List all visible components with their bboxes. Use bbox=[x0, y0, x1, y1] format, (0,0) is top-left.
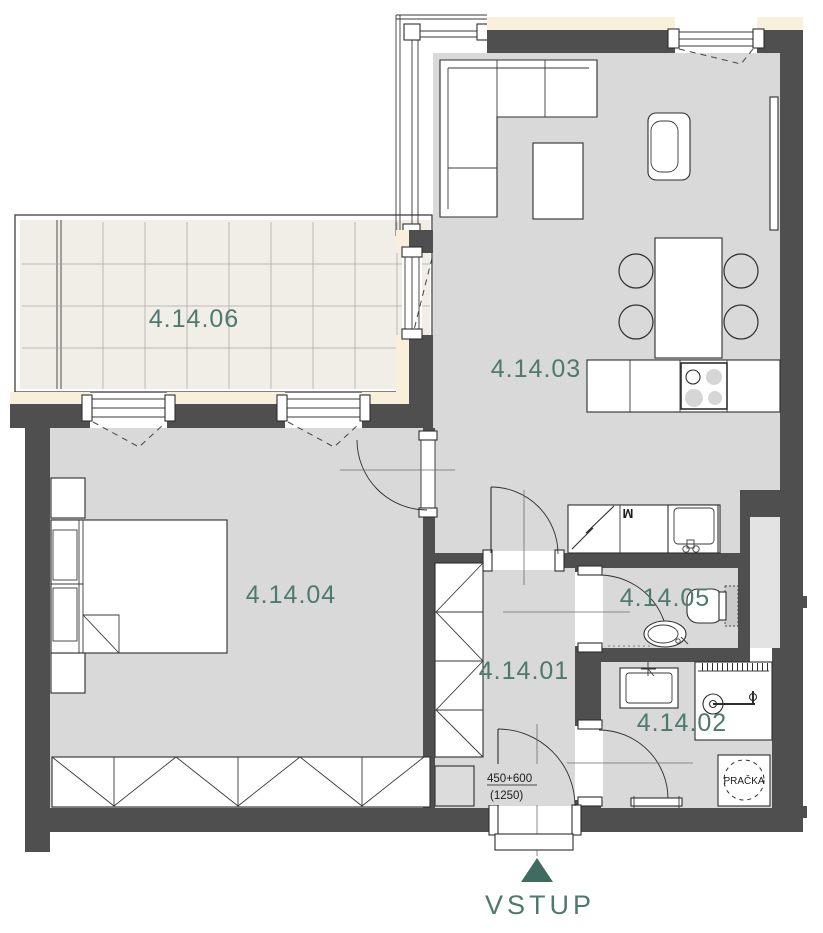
nightstand bbox=[51, 478, 85, 518]
washing-machine: PRAČKA bbox=[718, 755, 770, 806]
tv-panel bbox=[770, 97, 778, 230]
room-label-living-kitchen: 4.14.03 bbox=[491, 355, 581, 383]
towel-radiator bbox=[631, 796, 682, 808]
entrance-dimension: 450+600 (1250) bbox=[484, 764, 550, 805]
room-label-bathroom: 4.14.02 bbox=[637, 709, 727, 737]
entrance-label: VSTUP bbox=[485, 890, 595, 920]
kitchen-sink bbox=[668, 505, 718, 553]
floor-plan-drawing: M 450+600 (1250) bbox=[0, 0, 823, 933]
room-label-wc: 4.14.05 bbox=[620, 584, 710, 612]
dining-chair bbox=[724, 254, 758, 288]
dining-chair bbox=[724, 305, 758, 339]
dining-chair bbox=[619, 254, 653, 288]
room-label-hall: 4.14.01 bbox=[479, 657, 569, 685]
floor-plan: M 450+600 (1250) bbox=[0, 0, 823, 933]
entrance-arrow-icon bbox=[521, 858, 553, 882]
kitchen-counter bbox=[587, 360, 780, 412]
entrance-threshold bbox=[495, 834, 573, 850]
bath-washbasin bbox=[620, 662, 678, 708]
wardrobe-bedroom bbox=[52, 757, 430, 807]
dining-table bbox=[655, 238, 722, 358]
stove bbox=[681, 363, 727, 409]
room-balcony bbox=[15, 215, 432, 392]
wardrobe-hall bbox=[435, 563, 483, 757]
kitchen-lower-counter: M bbox=[568, 505, 720, 553]
door-dimension-text: 450+600 bbox=[487, 773, 532, 785]
entrance-marker: VSTUP bbox=[485, 858, 595, 920]
duct-shaft bbox=[725, 586, 738, 626]
dining-chair bbox=[619, 305, 653, 339]
meter-mark: M bbox=[623, 506, 634, 521]
room-label-balcony: 4.14.06 bbox=[149, 305, 239, 333]
floor-shaft-niche bbox=[750, 517, 780, 648]
armchair bbox=[648, 113, 690, 180]
door-dimension-total-text: (1250) bbox=[490, 790, 523, 802]
washing-machine-label: PRAČKA bbox=[723, 774, 764, 787]
room-label-bedroom: 4.14.04 bbox=[246, 581, 336, 609]
coffee-table bbox=[533, 143, 583, 219]
hall-cabinet bbox=[435, 766, 474, 806]
nightstand bbox=[51, 653, 85, 693]
